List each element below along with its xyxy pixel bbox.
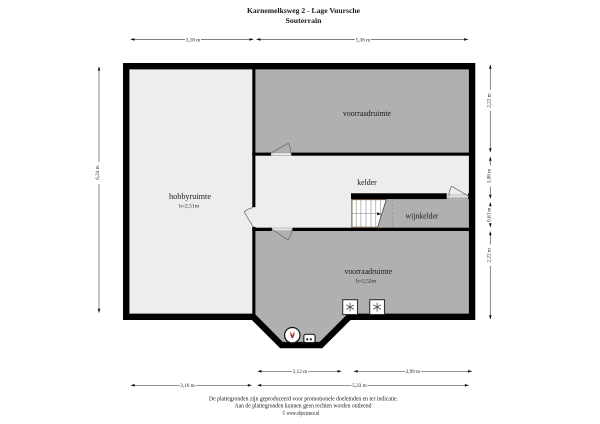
svg-text:5,33 m: 5,33 m <box>352 383 366 389</box>
svg-text:© www.objectence.nl: © www.objectence.nl <box>282 410 319 417</box>
svg-text:5,36 m: 5,36 m <box>356 37 370 43</box>
svg-text:6,24 m: 6,24 m <box>95 165 101 179</box>
svg-text:1,08 m: 1,08 m <box>486 169 492 183</box>
svg-text:Souterrain: Souterrain <box>286 16 323 25</box>
svg-text:2,12 m: 2,12 m <box>293 369 307 375</box>
svg-text:2,22 m: 2,22 m <box>486 248 492 262</box>
svg-text:voorraadruimte: voorraadruimte <box>343 109 391 118</box>
svg-text:hobbyruimte: hobbyruimte <box>169 192 211 201</box>
svg-text:wijnkelder: wijnkelder <box>406 211 439 220</box>
svg-text:2,99 m: 2,99 m <box>406 369 420 375</box>
svg-text:h=2,52m: h=2,52m <box>356 278 377 284</box>
svg-text:3,16 m: 3,16 m <box>180 383 194 389</box>
svg-text:De plattegronden zijn geproduc: De plattegronden zijn geproduceerd voor … <box>209 395 398 402</box>
svg-text:3,18 m: 3,18 m <box>186 37 200 43</box>
svg-text:kelder: kelder <box>357 178 377 187</box>
svg-text:Karnemelksweg 2 - Lage Vuursch: Karnemelksweg 2 - Lage Vuursche <box>247 6 361 15</box>
svg-text:h=2,51m: h=2,51m <box>179 204 200 210</box>
svg-text:2,22 m: 2,22 m <box>486 93 492 107</box>
svg-text:0,63 m: 0,63 m <box>486 208 492 222</box>
svg-text:Aan de plattegronden kunnen ge: Aan de plattegronden kunnen geen rechten… <box>235 403 373 410</box>
svg-text:voorraadruimte: voorraadruimte <box>344 267 392 276</box>
